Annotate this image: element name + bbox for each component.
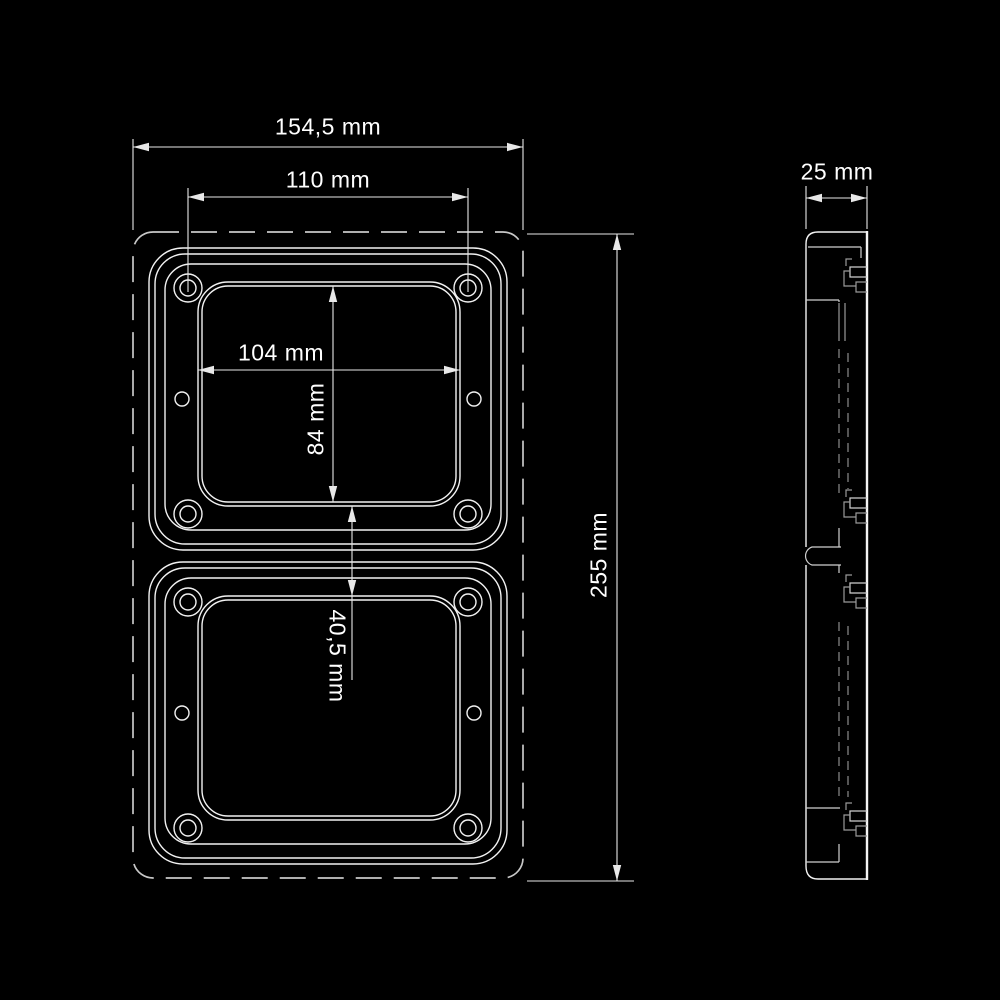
side-profile-outline [806,232,867,547]
side-clip-2 [844,490,867,523]
front-view [133,232,523,878]
dim-label-opening-height: 84 mm [305,383,328,456]
dim-label-opening-gap: 40,5 mm [326,610,349,703]
technical-drawing-page: 154,5 mm 110 mm 104 mm 84 mm 40,5 mm 255… [0,0,1000,1000]
dim-label-overall-height: 255 mm [588,512,611,598]
side-clip-3 [844,575,867,608]
drawing-canvas [0,0,1000,1000]
dim-label-depth: 25 mm [801,161,874,184]
dim-opening-height [329,286,337,502]
dim-opening-width [198,366,460,374]
lamp-module-bottom [149,562,507,864]
dim-label-overall-width: 154,5 mm [275,116,381,139]
side-clip-4 [844,803,867,836]
dim-overall-height [527,234,634,881]
frame-outer-dashed-outline [133,232,523,878]
dimension-annotations [133,139,867,881]
dim-hole-spacing [188,188,468,292]
side-clip-1 [844,259,867,292]
side-seam-notch [806,547,841,565]
dim-label-hole-spacing: 110 mm [286,169,370,192]
dim-depth [806,186,867,229]
dim-label-opening-width: 104 mm [238,342,324,365]
side-view [806,231,867,880]
